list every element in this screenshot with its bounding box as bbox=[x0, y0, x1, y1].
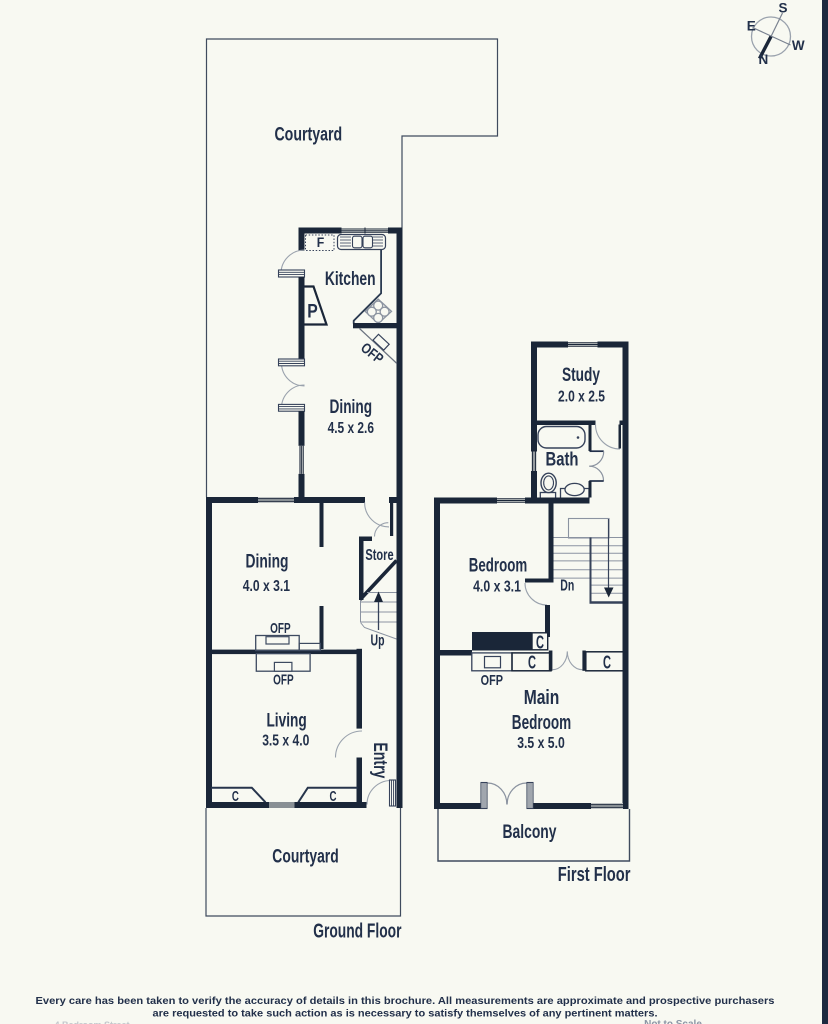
svg-text:OFP: OFP bbox=[481, 672, 503, 689]
svg-text:C: C bbox=[536, 633, 544, 653]
svg-text:Not to Scale: Not to Scale bbox=[644, 1019, 702, 1024]
svg-text:4.0 x 3.1: 4.0 x 3.1 bbox=[243, 578, 290, 595]
svg-text:Courtyard: Courtyard bbox=[272, 846, 338, 868]
svg-text:Up: Up bbox=[371, 633, 385, 650]
svg-text:3.5 x 5.0: 3.5 x 5.0 bbox=[517, 735, 565, 752]
svg-text:Dining: Dining bbox=[246, 551, 289, 573]
svg-text:W: W bbox=[792, 38, 805, 53]
svg-text:Balcony: Balcony bbox=[503, 821, 557, 843]
svg-text:4 Bedroom Street: 4 Bedroom Street bbox=[54, 1020, 129, 1024]
svg-text:Bedroom: Bedroom bbox=[512, 712, 571, 734]
svg-text:N: N bbox=[759, 52, 769, 67]
svg-text:4.0 x 3.1: 4.0 x 3.1 bbox=[473, 579, 521, 596]
svg-text:Kitchen: Kitchen bbox=[325, 268, 376, 290]
svg-text:2.0 x 2.5: 2.0 x 2.5 bbox=[558, 389, 605, 406]
svg-text:are requested to take such act: are requested to take such action as is … bbox=[153, 1009, 658, 1020]
svg-text:Every care has been taken to v: Every care has been taken to verify the … bbox=[36, 996, 775, 1007]
svg-text:F: F bbox=[317, 235, 325, 250]
svg-text:P: P bbox=[307, 302, 318, 323]
svg-text:S: S bbox=[778, 1, 787, 16]
svg-text:C: C bbox=[528, 653, 536, 673]
svg-text:E: E bbox=[747, 19, 756, 34]
svg-text:C: C bbox=[603, 653, 611, 673]
svg-text:Living: Living bbox=[266, 710, 306, 732]
svg-text:Ground Floor: Ground Floor bbox=[313, 921, 401, 943]
svg-text:Courtyard: Courtyard bbox=[274, 124, 342, 146]
svg-text:Store: Store bbox=[365, 547, 393, 564]
svg-text:First Floor: First Floor bbox=[558, 864, 631, 886]
svg-text:Bath: Bath bbox=[546, 449, 579, 471]
svg-text:Study: Study bbox=[562, 364, 600, 386]
svg-text:Bedroom: Bedroom bbox=[469, 555, 528, 577]
svg-text:OFP: OFP bbox=[270, 620, 291, 637]
svg-text:4.5 x 2.6: 4.5 x 2.6 bbox=[328, 420, 375, 437]
svg-text:3.5 x 4.0: 3.5 x 4.0 bbox=[262, 733, 309, 750]
svg-text:Dn: Dn bbox=[560, 578, 574, 595]
svg-text:Entry: Entry bbox=[369, 742, 391, 778]
svg-text:Dining: Dining bbox=[330, 396, 373, 418]
svg-text:OFP: OFP bbox=[273, 671, 294, 688]
svg-text:Main: Main bbox=[524, 687, 560, 709]
